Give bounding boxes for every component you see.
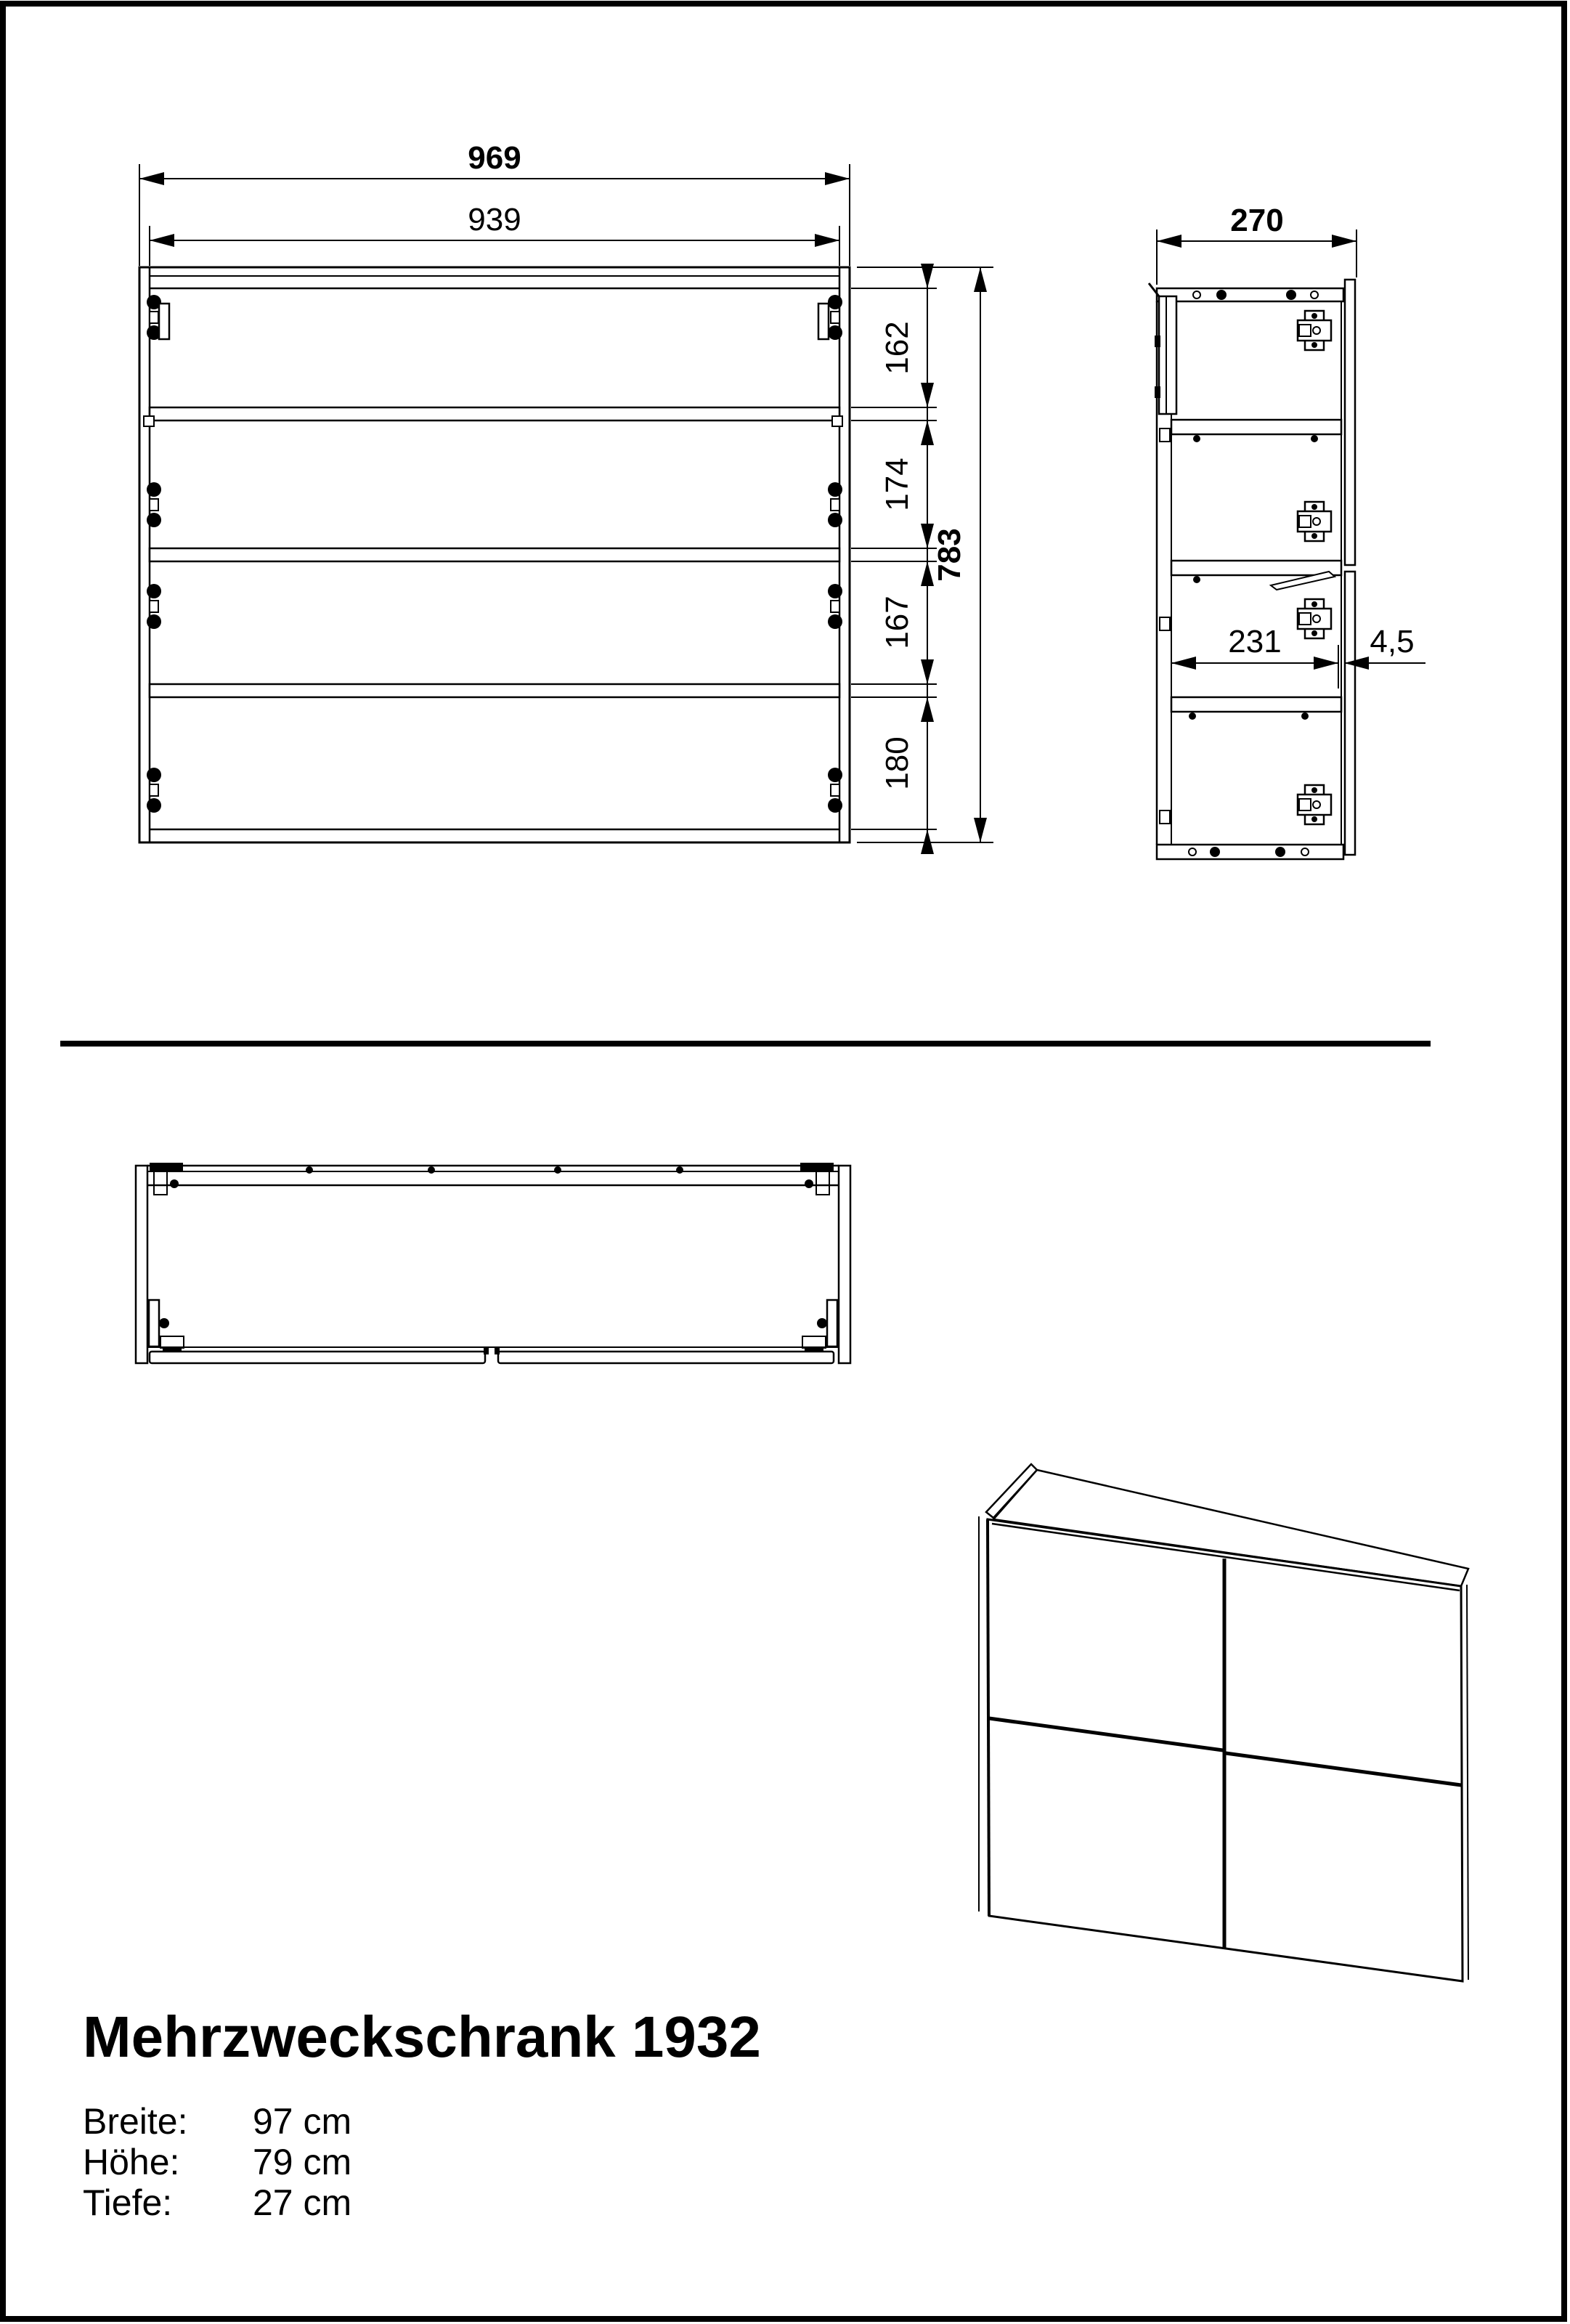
spec-value-hoehe: 79 cm [253, 2142, 351, 2182]
dim-side-depth: 270 [1157, 203, 1357, 285]
hinge-plate [1298, 599, 1331, 638]
dim-front-inner-width: 939 [150, 202, 839, 266]
hinge-plate [1298, 785, 1331, 824]
side-view-door [1345, 280, 1355, 855]
dim-label-4-5: 4,5 [1370, 624, 1414, 659]
plan-view [136, 1163, 850, 1363]
spec-value-tiefe: 27 cm [253, 2182, 351, 2223]
side-view-wall-bracket [1149, 283, 1176, 414]
hinge-plate [1298, 311, 1331, 350]
spec-label-hoehe: Höhe: [83, 2142, 179, 2182]
technical-drawing-page: 969 939 162 174 [0, 0, 1570, 2324]
spec-row-hoehe: Höhe: 79 cm [83, 2142, 351, 2182]
spec-label-tiefe: Tiefe: [83, 2182, 172, 2223]
page-title: Mehrzweckschrank 1932 [83, 2004, 761, 2069]
dim-label-270: 270 [1230, 203, 1283, 238]
side-view: 270 231 4,5 [1149, 203, 1425, 859]
page-border [3, 4, 1564, 2319]
hinge-plate [1298, 502, 1331, 541]
drawing-canvas: 969 939 162 174 [0, 0, 1570, 2324]
side-view-body [1157, 288, 1343, 859]
dim-label-167: 167 [879, 596, 915, 649]
spec-row-tiefe: Tiefe: 27 cm [83, 2182, 351, 2223]
wall-bracket-right [818, 304, 829, 339]
perspective-view [979, 1464, 1468, 1981]
dim-label-180: 180 [879, 736, 915, 789]
dim-label-174: 174 [879, 458, 915, 511]
left-door-edge [988, 1519, 989, 1916]
plan-view-body [136, 1166, 850, 1363]
front-view: 969 939 162 174 [139, 140, 993, 854]
dim-label-969: 969 [468, 140, 521, 176]
spec-row-breite: Breite: 97 cm [83, 2101, 351, 2142]
title-block: Mehrzweckschrank 1932 Breite: 97 cm Höhe… [83, 2004, 761, 2223]
dim-front-total-height: 783 [857, 267, 993, 842]
right-side-edge [1467, 1585, 1468, 1980]
dim-label-939: 939 [468, 202, 521, 237]
spec-value-breite: 97 cm [253, 2101, 351, 2142]
wall-bracket-left [159, 304, 169, 339]
dim-label-162: 162 [879, 321, 915, 374]
plan-view-doors [150, 1348, 834, 1363]
dim-label-231: 231 [1228, 624, 1281, 659]
spec-label-breite: Breite: [83, 2101, 188, 2142]
dim-label-783: 783 [932, 528, 967, 581]
front-view-shelves [144, 407, 842, 697]
dim-side-door-gap: 4,5 [1344, 624, 1425, 670]
plan-view-hinges [149, 1300, 837, 1352]
plan-view-corner-fittings [150, 1163, 834, 1195]
dim-front-sections: 162 174 167 180 [851, 264, 937, 854]
